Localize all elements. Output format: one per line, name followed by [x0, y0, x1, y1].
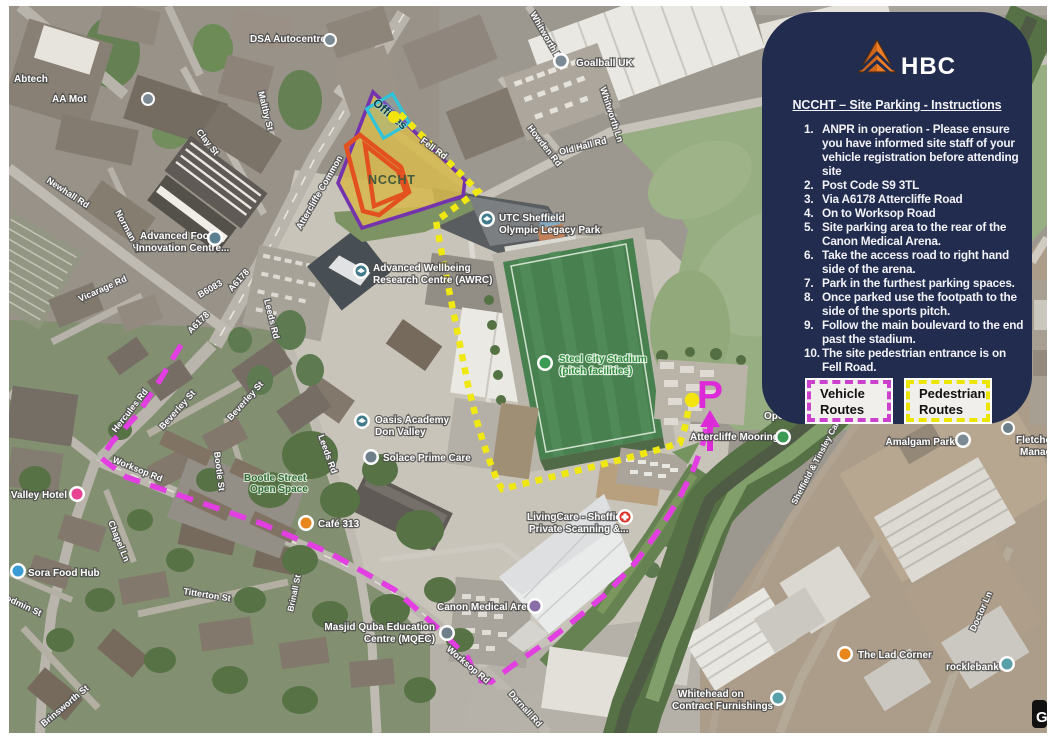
svg-text:Olympic Legacy Park: Olympic Legacy Park — [499, 225, 601, 236]
svg-text:G: G — [1036, 709, 1048, 726]
svg-text:Goalball UK: Goalball UK — [576, 58, 633, 69]
svg-text:NCCHT: NCCHT — [368, 173, 416, 187]
svg-text:Whitehead on: Whitehead on — [678, 689, 744, 700]
svg-text:Fletche: Fletche — [1016, 435, 1051, 446]
svg-text:Research Centre (AWRC): Research Centre (AWRC) — [373, 275, 492, 286]
svg-text:Café 313: Café 313 — [318, 519, 360, 530]
svg-text:Open Space: Open Space — [250, 484, 308, 495]
svg-text:Sora Food Hub: Sora Food Hub — [28, 568, 100, 579]
svg-text:Contract Furnishings: Contract Furnishings — [672, 701, 774, 712]
svg-text:DSA Autocentre: DSA Autocentre — [250, 34, 326, 45]
svg-text:Attercliffe Moorings: Attercliffe Moorings — [690, 432, 785, 443]
svg-text:Steel City Stadium: Steel City Stadium — [559, 354, 647, 365]
svg-text:Manag: Manag — [1020, 447, 1052, 458]
svg-text:Don Valley: Don Valley — [375, 427, 426, 438]
svg-text:Amalgam Park: Amalgam Park — [886, 437, 956, 448]
svg-text:AA Mot: AA Mot — [52, 94, 87, 105]
svg-text:Solace Prime Care: Solace Prime Care — [383, 453, 471, 464]
svg-text:Private Scanning &...: Private Scanning &... — [529, 524, 629, 535]
svg-text:Do: Do — [1046, 460, 1055, 474]
svg-text:Abtech: Abtech — [14, 74, 48, 85]
svg-text:(pitch facilities): (pitch facilities) — [559, 366, 632, 377]
svg-text:Advanced Food: Advanced Food — [140, 231, 215, 242]
svg-text:UTC Sheffield: UTC Sheffield — [499, 213, 565, 224]
svg-text:The Lad Corner: The Lad Corner — [858, 650, 932, 661]
svg-text:n Valley Hotel: n Valley Hotel — [2, 490, 67, 501]
svg-text:Oasis Academy: Oasis Academy — [375, 415, 450, 426]
svg-text:Canon Medical Arena: Canon Medical Arena — [437, 602, 539, 613]
svg-text:Centre (MQEC): Centre (MQEC) — [364, 634, 435, 645]
svg-text:Advanced Wellbeing: Advanced Wellbeing — [373, 263, 471, 274]
svg-text:Bootle Street: Bootle Street — [244, 473, 307, 484]
svg-text:Masjid Quba Education: Masjid Quba Education — [324, 622, 435, 633]
svg-text:LivingCare - Sheffield: LivingCare - Sheffield — [527, 512, 630, 523]
svg-text:rocklebank: rocklebank — [946, 662, 999, 673]
